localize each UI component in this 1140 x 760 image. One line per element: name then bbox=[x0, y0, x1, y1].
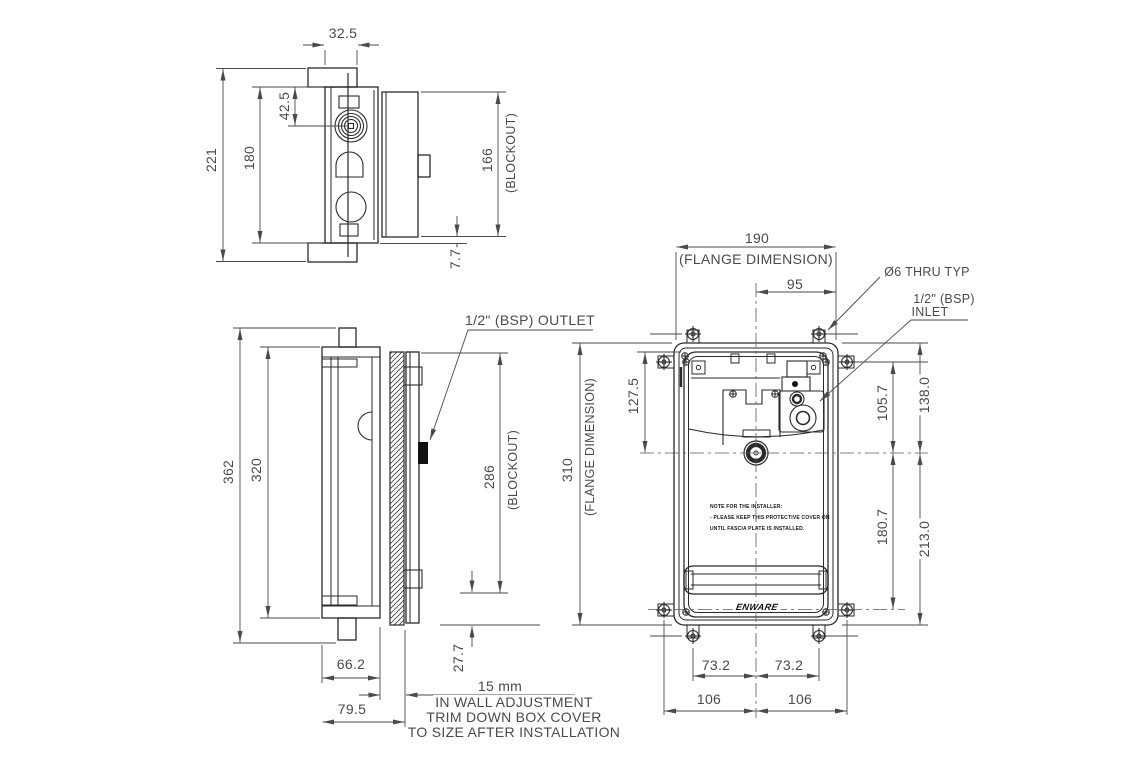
dim-166: 166 bbox=[480, 146, 494, 174]
installer-note-line-1: NOTE FOR THE INSTALLER: bbox=[710, 504, 783, 510]
dim-310: 310 bbox=[560, 456, 574, 484]
drawing-linework bbox=[0, 0, 1140, 760]
brand-logo: ENWARE bbox=[732, 602, 782, 612]
installer-note-line-2: - PLEASE KEEP THIS PROTECTIVE COVER ON bbox=[710, 515, 830, 521]
dim-73-2-left: 73.2 bbox=[700, 658, 732, 672]
dim-127-5: 127.5 bbox=[626, 376, 640, 417]
dim-66-2: 66.2 bbox=[335, 657, 367, 671]
dim-180: 180 bbox=[242, 144, 256, 172]
dim-95: 95 bbox=[785, 277, 805, 291]
adjustment-note-line-3: TO SIZE AFTER INSTALLATION bbox=[406, 725, 622, 739]
dim-79-5: 79.5 bbox=[336, 702, 368, 716]
outlet-port bbox=[418, 442, 428, 464]
outlet-label: 1/2" (BSP) OUTLET bbox=[463, 313, 597, 327]
dim-190: 190 bbox=[743, 231, 771, 245]
dim-42-5: 42.5 bbox=[277, 90, 291, 122]
adjustment-note-line-1: IN WALL ADJUSTMENT bbox=[433, 695, 595, 709]
blockout-label-side: (BLOCKOUT) bbox=[507, 428, 520, 512]
top-view-part bbox=[308, 68, 430, 262]
dim-27-7: 27.7 bbox=[451, 642, 465, 674]
top-view-dims bbox=[216, 45, 506, 264]
installer-note-line-3: UNTIL FASCIA PLATE IS INSTALLED. bbox=[710, 526, 805, 532]
flange-width-label: (FLANGE DIMENSION) bbox=[677, 252, 835, 266]
blockout-label-top: (BLOCKOUT) bbox=[505, 111, 518, 195]
wall-hatch bbox=[390, 352, 404, 625]
dim-15mm: 15 mm bbox=[476, 679, 524, 693]
dim-362: 362 bbox=[221, 458, 235, 486]
engineering-drawing-canvas: 32.5 221 180 42.5 166 (BLOCKOUT) 7.7 362… bbox=[0, 0, 1140, 760]
dim-320: 320 bbox=[249, 456, 263, 484]
dim-7-7: 7.7 bbox=[448, 247, 462, 271]
dim-138-0: 138.0 bbox=[917, 375, 931, 416]
thru-hole-label: Ø6 THRU TYP bbox=[882, 266, 972, 279]
wall-section bbox=[390, 352, 404, 625]
dim-213-0: 213.0 bbox=[917, 519, 931, 560]
inlet-label-2: INLET bbox=[910, 306, 951, 319]
dim-73-2-right: 73.2 bbox=[773, 658, 805, 672]
dim-106-right: 106 bbox=[786, 692, 814, 706]
dim-221: 221 bbox=[204, 146, 218, 174]
dim-32-5: 32.5 bbox=[327, 26, 359, 40]
inlet-valve bbox=[779, 361, 824, 432]
side-view-dims bbox=[233, 328, 593, 727]
dim-106-left: 106 bbox=[695, 692, 723, 706]
dim-180-7: 180.7 bbox=[875, 507, 889, 548]
flange-height-label: (FLANGE DIMENSION) bbox=[584, 376, 597, 518]
dim-105-7: 105.7 bbox=[875, 383, 889, 424]
dim-286: 286 bbox=[482, 463, 496, 491]
adjustment-note-line-2: TRIM DOWN BOX COVER bbox=[424, 710, 603, 724]
side-view-part bbox=[322, 328, 428, 640]
inlet-label-1: 1/2" (BSP) bbox=[911, 293, 977, 306]
